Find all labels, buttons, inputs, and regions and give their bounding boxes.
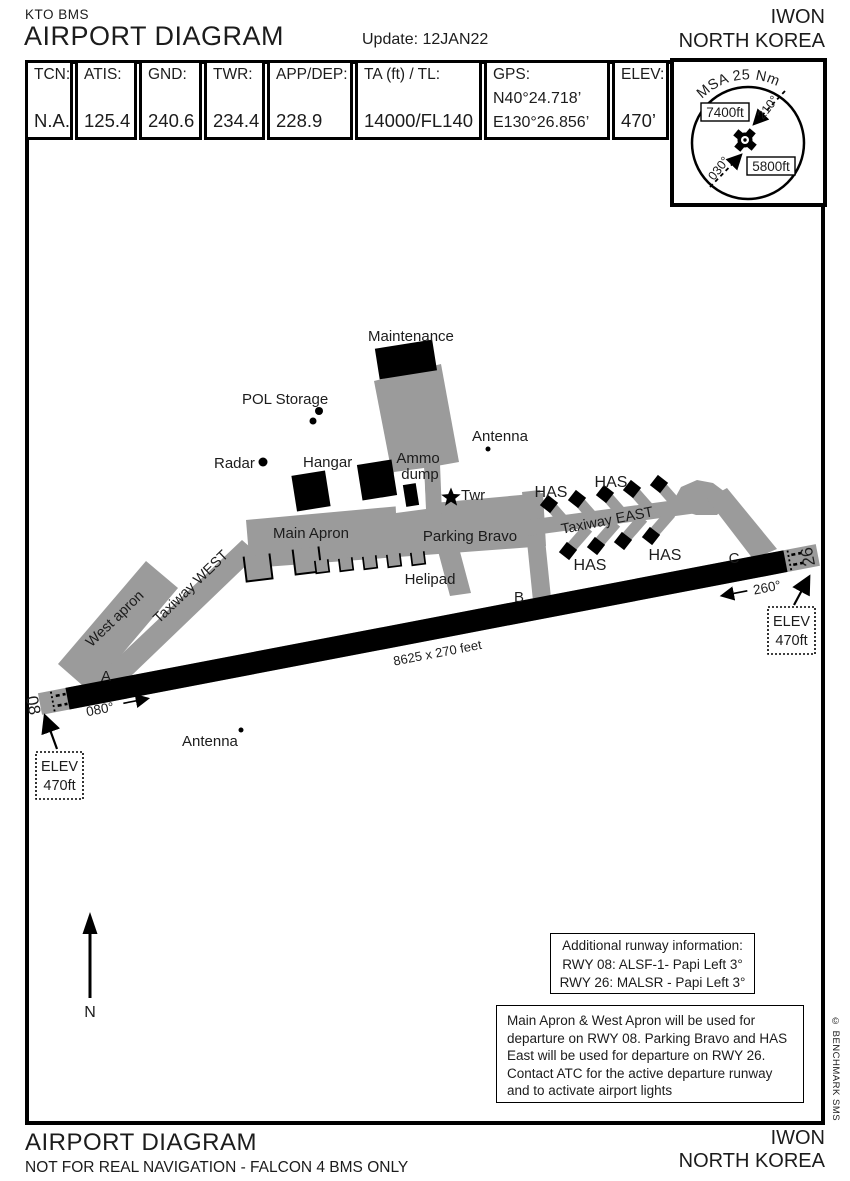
- ta-tl-label: TA (ft) / TL:: [364, 66, 475, 84]
- footer-title: AIRPORT DIAGRAM: [25, 1129, 257, 1157]
- runway-info-line-3: RWY 26: MALSR - Papi Left 3°: [551, 974, 754, 993]
- antenna-north-label: Antenna: [472, 428, 529, 445]
- info-cell-ta-tl: TA (ft) / TL: 14000/FL140: [355, 60, 482, 140]
- has-label-3: HAS: [574, 557, 607, 574]
- pol-storage-dot-2: [310, 418, 317, 425]
- atis-label: ATIS:: [84, 66, 130, 84]
- runway-08-number: 08: [22, 694, 44, 716]
- runway-26-heading: 260°: [752, 578, 782, 598]
- antenna-north-dot: [486, 447, 491, 452]
- has-label-2: HAS: [595, 474, 628, 491]
- antenna-south-dot: [239, 728, 244, 733]
- twr-value: 234.4: [213, 110, 258, 132]
- elev-west-line2: 470ft: [43, 778, 75, 794]
- appdep-label: APP/DEP:: [276, 66, 346, 84]
- info-cell-twr: TWR: 234.4: [204, 60, 265, 140]
- frequency-info-table: TCN: N.A. ATIS: 125.4 GND: 240.6 TWR: 23…: [25, 60, 669, 140]
- pol-storage-label: POL Storage: [242, 391, 328, 408]
- departure-info-line-5: and to activate airport lights: [507, 1082, 795, 1100]
- info-cell-appdep: APP/DEP: 228.9: [267, 60, 353, 140]
- hangar-building-1: [291, 471, 330, 512]
- ammo-dump-label-2: dump: [401, 466, 439, 483]
- ammo-dump-label-1: Ammo: [396, 450, 439, 467]
- runway-info-line-2: RWY 08: ALSF-1- Papi Left 3°: [551, 956, 754, 975]
- hangar-building-2: [357, 459, 397, 500]
- parking-bravo-label: Parking Bravo: [423, 528, 517, 545]
- runway-26-number: 26: [797, 546, 819, 568]
- helipad-label: Helipad: [405, 571, 456, 588]
- gps-label: GPS:: [493, 66, 603, 84]
- info-cell-elev: ELEV: 470’: [612, 60, 669, 140]
- info-cell-tcn: TCN: N.A.: [25, 60, 73, 140]
- ta-tl-value: 14000/FL140: [364, 110, 475, 132]
- runway-info-line-1: Additional runway information:: [551, 937, 754, 956]
- departure-info-note: Main Apron & West Apron will be used for…: [496, 1005, 804, 1103]
- taxiway-c-label: C: [729, 550, 740, 567]
- has-label-4: HAS: [649, 547, 682, 564]
- gnd-label: GND:: [148, 66, 195, 84]
- elev-label: ELEV:: [621, 66, 662, 84]
- info-cell-gnd: GND: 240.6: [139, 60, 202, 140]
- copyright-text: © BENCHMARK SMS: [830, 1016, 841, 1121]
- elev-east-line2: 470ft: [775, 633, 807, 649]
- pol-storage-dot-1: [315, 407, 323, 415]
- runway-08-heading-arrow: [123, 699, 148, 704]
- gps-latitude: N40°24.718’: [493, 90, 603, 108]
- elev-box-west: ELEV 470ft: [36, 716, 83, 799]
- footer-disclaimer: NOT FOR REAL NAVIGATION - FALCON 4 BMS O…: [25, 1159, 408, 1177]
- info-cell-gps: GPS: N40°24.718’ E130°26.856’: [484, 60, 610, 140]
- north-arrow: N: [83, 912, 98, 1021]
- twr-label: TWR:: [213, 66, 258, 84]
- elev-east-line1: ELEV: [773, 614, 810, 630]
- footer-airport-name: IWON: [771, 1127, 825, 1150]
- main-apron-label: Main Apron: [273, 525, 349, 542]
- gnd-value: 240.6: [148, 110, 195, 132]
- info-cell-atis: ATIS: 125.4: [75, 60, 137, 140]
- elev-value: 470’: [621, 110, 662, 132]
- atis-value: 125.4: [84, 110, 130, 132]
- taxiway-c-pavement: [707, 488, 777, 559]
- hangar-label: Hangar: [303, 454, 352, 471]
- tcn-label: TCN:: [34, 66, 66, 84]
- departure-info-line-1: Main Apron & West Apron will be used for: [507, 1012, 795, 1030]
- tower-label: Twr: [461, 487, 485, 504]
- footer-airport-country: NORTH KOREA: [679, 1150, 825, 1173]
- msa-inset: MSA 25 Nm 210° 030° 7400ft 5800ft: [672, 60, 825, 205]
- airport-diagram-page: KTO BMS AIRPORT DIAGRAM Update: 12JAN22 …: [0, 0, 850, 1181]
- radar-label: Radar: [214, 455, 255, 472]
- antenna-south-label: Antenna: [182, 733, 239, 750]
- departure-info-line-4: Contact ATC for the active departure run…: [507, 1065, 795, 1083]
- has-label-1: HAS: [535, 484, 568, 501]
- elev-west-line1: ELEV: [41, 759, 78, 775]
- radar-dot: [259, 458, 268, 467]
- maintenance-label: Maintenance: [368, 328, 454, 345]
- runway-info-note: Additional runway information: RWY 08: A…: [550, 933, 755, 994]
- taxiway-b-label: B: [514, 589, 524, 606]
- north-label: N: [84, 1004, 96, 1021]
- msa-altitude-nw: 7400ft: [706, 105, 744, 120]
- appdep-value: 228.9: [276, 110, 346, 132]
- tcn-value: N.A.: [34, 110, 66, 132]
- runway-26-heading-arrow: [722, 591, 748, 596]
- msa-altitude-se: 5800ft: [752, 159, 790, 174]
- departure-info-line-3: East will be used for departure on RWY 2…: [507, 1047, 795, 1065]
- departure-info-line-2: departure on RWY 08. Parking Bravo and H…: [507, 1030, 795, 1048]
- gps-longitude: E130°26.856’: [493, 114, 603, 132]
- taxiway-a-label: A: [101, 668, 111, 685]
- airport-diagram-chart: 08 26 080° 8625 x 270 feet 260° Maintena…: [0, 0, 850, 1181]
